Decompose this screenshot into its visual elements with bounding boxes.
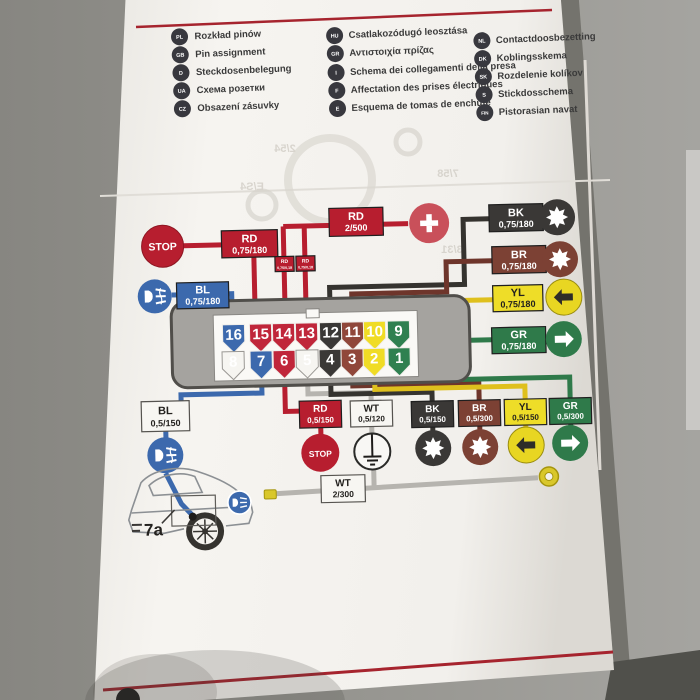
svg-text:2/300: 2/300 bbox=[333, 489, 355, 499]
label-rd-splice-1: RD 0,75/0,18 bbox=[275, 256, 294, 271]
svg-text:FIN: FIN bbox=[481, 110, 489, 115]
svg-text:WT: WT bbox=[363, 403, 379, 414]
label-br-bottom: BR 0,5/300 bbox=[458, 400, 501, 427]
svg-text:STOP: STOP bbox=[148, 241, 177, 254]
svg-text:8: 8 bbox=[229, 354, 238, 371]
svg-text:YL: YL bbox=[519, 402, 532, 413]
svg-text:14: 14 bbox=[275, 325, 293, 342]
stop-sign-icon: STOP bbox=[141, 225, 184, 268]
label-bl-top: BL 0,75/180 bbox=[176, 282, 229, 309]
svg-text:E/S4: E/S4 bbox=[239, 181, 264, 193]
svg-text:YL: YL bbox=[511, 287, 526, 299]
svg-text:BK: BK bbox=[425, 404, 440, 415]
svg-text:5: 5 bbox=[303, 352, 312, 369]
svg-text:D: D bbox=[179, 71, 183, 77]
svg-text:16: 16 bbox=[225, 326, 242, 343]
svg-text:12: 12 bbox=[322, 324, 339, 341]
svg-text:UA: UA bbox=[178, 89, 186, 95]
svg-text:WT: WT bbox=[335, 478, 351, 489]
wire-ferrule bbox=[264, 490, 276, 499]
svg-text:SK: SK bbox=[479, 74, 487, 80]
svg-text:2/500: 2/500 bbox=[345, 223, 368, 234]
svg-text:S: S bbox=[482, 93, 486, 99]
svg-text:RD: RD bbox=[348, 211, 364, 223]
label-gr-bottom: GR 0,5/300 bbox=[549, 398, 592, 425]
svg-text:3: 3 bbox=[348, 351, 357, 368]
svg-text:RD: RD bbox=[241, 233, 257, 245]
svg-text:9: 9 bbox=[394, 323, 403, 340]
label-rd-splice-2: RD 0,75/0,18 bbox=[296, 256, 315, 271]
svg-text:GB: GB bbox=[176, 53, 185, 59]
label-bl-bottom: BL 0,5/150 bbox=[141, 401, 190, 432]
svg-text:0,75/180: 0,75/180 bbox=[501, 341, 536, 352]
svg-text:6: 6 bbox=[280, 352, 289, 369]
svg-text:0,75/180: 0,75/180 bbox=[185, 296, 220, 307]
svg-text:11: 11 bbox=[344, 324, 360, 341]
svg-text:4: 4 bbox=[326, 351, 335, 368]
svg-text:7: 7 bbox=[257, 353, 266, 370]
svg-text:0,75/180: 0,75/180 bbox=[232, 245, 267, 256]
svg-text:0,75/180: 0,75/180 bbox=[499, 219, 534, 230]
svg-text:0,75/0,18: 0,75/0,18 bbox=[298, 265, 313, 269]
label-rd-battery: RD 2/500 bbox=[329, 207, 384, 236]
left-indicator-icon-2 bbox=[508, 427, 545, 464]
label-wt-bottom: WT 0,5/120 bbox=[350, 400, 393, 427]
svg-text:7/58: 7/58 bbox=[437, 168, 458, 180]
svg-text:CZ: CZ bbox=[179, 107, 187, 113]
label-rd-left: RD 0,75/180 bbox=[221, 230, 278, 258]
svg-text:2: 2 bbox=[370, 350, 379, 367]
svg-text:RD: RD bbox=[302, 258, 310, 264]
label-br-top: BR 0,75/180 bbox=[492, 246, 547, 274]
car-ref-label: 7a bbox=[144, 520, 164, 539]
svg-text:GR: GR bbox=[510, 329, 527, 341]
svg-text:RD: RD bbox=[313, 404, 328, 415]
svg-text:0,5/120: 0,5/120 bbox=[358, 414, 385, 424]
left-indicator-icon bbox=[545, 279, 582, 316]
label-yl-top: YL 0,75/180 bbox=[493, 285, 544, 312]
svg-text:3/31: 3/31 bbox=[441, 244, 462, 256]
svg-text:10: 10 bbox=[366, 323, 383, 340]
fog-light-icon-on-car bbox=[228, 491, 252, 515]
svg-text:BL: BL bbox=[195, 284, 210, 296]
svg-text:0,5/300: 0,5/300 bbox=[466, 414, 493, 424]
svg-text:13: 13 bbox=[298, 325, 315, 342]
wire-stop-to-rd bbox=[184, 245, 222, 246]
svg-text:0,5/150: 0,5/150 bbox=[512, 413, 539, 423]
ring-terminal-icon bbox=[539, 467, 558, 486]
svg-text:0,5/150: 0,5/150 bbox=[150, 418, 180, 429]
svg-text:BK: BK bbox=[508, 207, 524, 219]
svg-text:BL: BL bbox=[158, 405, 173, 417]
label-wt-ground: WT 2/300 bbox=[321, 475, 366, 503]
ground-icon bbox=[354, 433, 391, 470]
svg-text:0,75/180: 0,75/180 bbox=[502, 261, 537, 272]
svg-text:STOP: STOP bbox=[309, 448, 333, 459]
svg-text:BR: BR bbox=[472, 403, 487, 414]
svg-text:GR: GR bbox=[331, 51, 340, 57]
background-paper-sliver bbox=[686, 150, 700, 430]
photographed-instruction-page: 2/54 7/58 E/S4 3/31 PL Rozkład pinów GB … bbox=[0, 0, 700, 700]
connector-block: 16 15 14 13 12 11 10 9 8 7 bbox=[171, 295, 471, 388]
label-bk-bottom: BK 0,5/150 bbox=[411, 401, 454, 428]
svg-text:0,75/0,18: 0,75/0,18 bbox=[277, 266, 292, 270]
svg-text:1: 1 bbox=[395, 350, 404, 367]
label-rd-bottom: RD 0,5/150 bbox=[299, 400, 342, 428]
svg-text:BR: BR bbox=[511, 249, 527, 261]
connector-key-notch bbox=[306, 309, 319, 318]
svg-text:E: E bbox=[336, 106, 340, 112]
svg-text:GR: GR bbox=[563, 401, 579, 412]
svg-text:0,75/180: 0,75/180 bbox=[500, 299, 535, 310]
svg-text:DK: DK bbox=[479, 57, 487, 63]
svg-text:HU: HU bbox=[331, 33, 339, 39]
label-yl-bottom: YL 0,5/150 bbox=[504, 399, 547, 426]
svg-text:2/54: 2/54 bbox=[273, 143, 295, 155]
svg-text:15: 15 bbox=[252, 326, 269, 343]
svg-text:0,5/150: 0,5/150 bbox=[419, 415, 446, 425]
svg-text:NL: NL bbox=[478, 39, 486, 45]
svg-text:PL: PL bbox=[176, 35, 184, 41]
label-gr-top: GR 0,75/180 bbox=[492, 327, 547, 354]
label-bk-top: BK 0,75/180 bbox=[489, 204, 544, 232]
svg-text:0,5/150: 0,5/150 bbox=[307, 415, 334, 425]
svg-text:RD: RD bbox=[281, 259, 289, 265]
svg-text:0,5/300: 0,5/300 bbox=[557, 412, 584, 422]
